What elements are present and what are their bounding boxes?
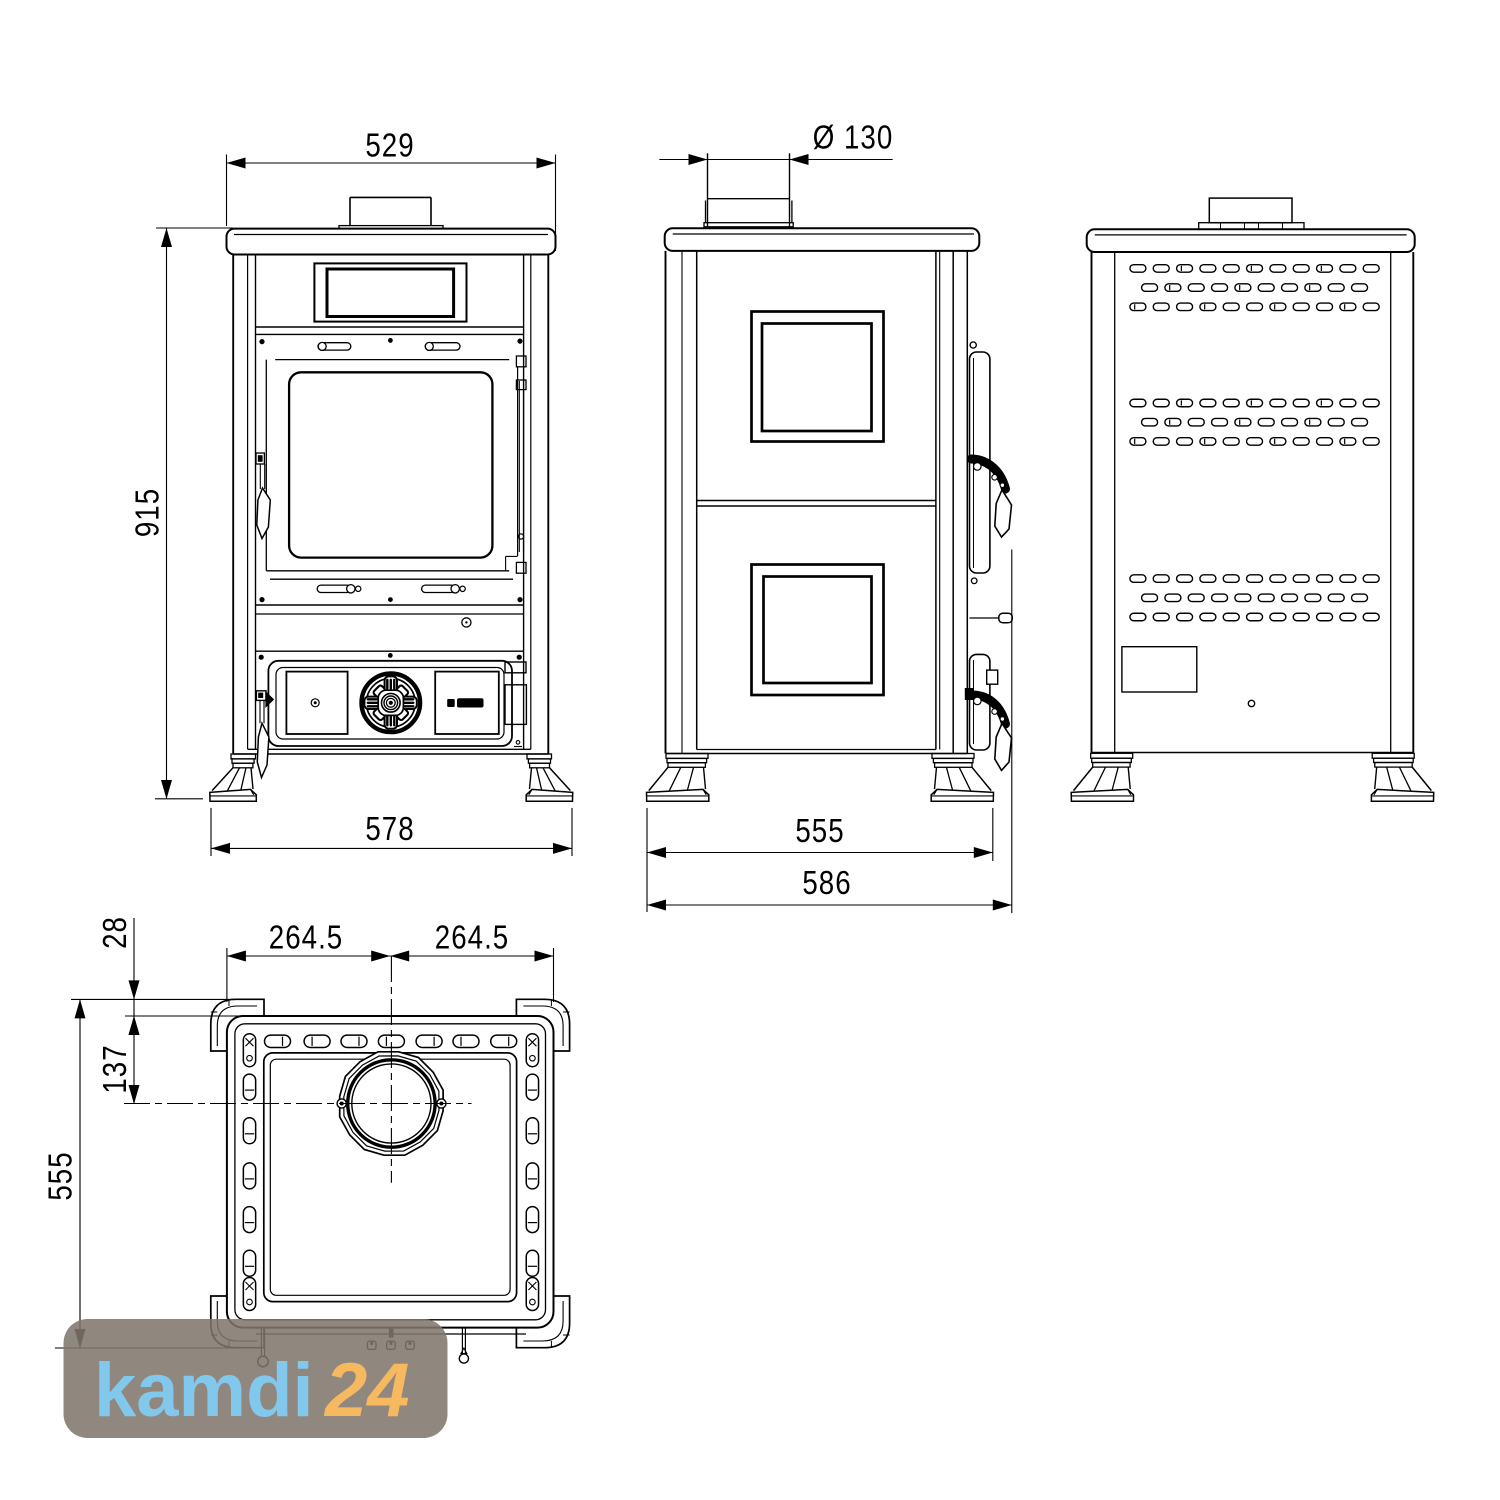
svg-text:264.5: 264.5 xyxy=(435,919,509,956)
svg-text:kamdi: kamdi xyxy=(94,1348,314,1433)
svg-text:137: 137 xyxy=(97,1044,134,1093)
svg-text:555: 555 xyxy=(42,1151,79,1200)
svg-text:586: 586 xyxy=(802,865,851,902)
svg-text:28: 28 xyxy=(97,916,134,949)
svg-text:Ø 130: Ø 130 xyxy=(813,119,894,156)
svg-text:24: 24 xyxy=(323,1348,410,1433)
svg-text:555: 555 xyxy=(795,813,844,850)
svg-text:264.5: 264.5 xyxy=(269,919,343,956)
svg-text:578: 578 xyxy=(365,811,414,848)
svg-text:915: 915 xyxy=(129,488,166,537)
svg-text:529: 529 xyxy=(365,127,414,164)
